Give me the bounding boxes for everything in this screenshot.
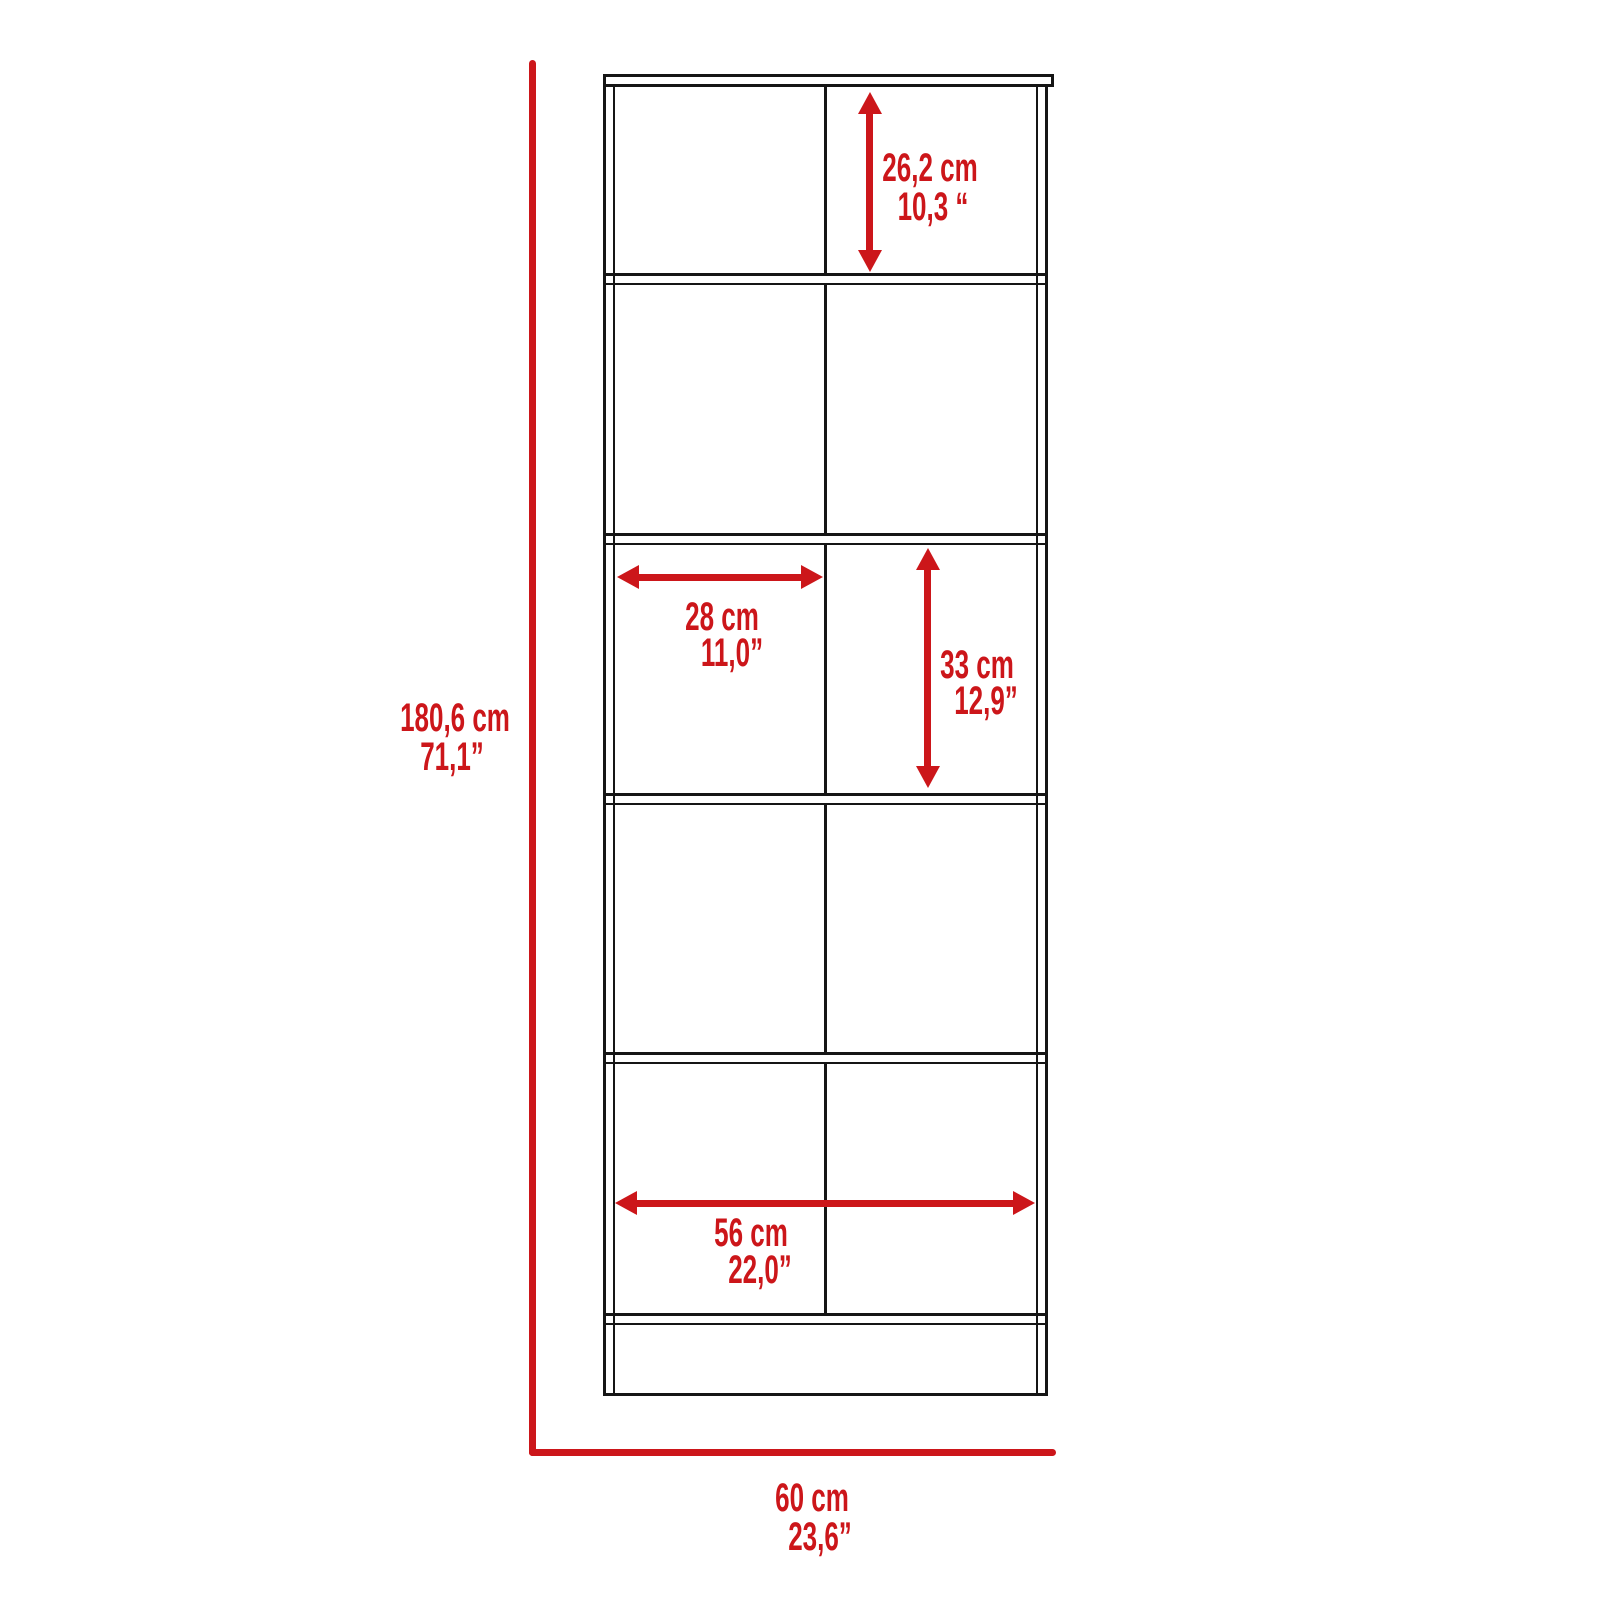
arrow-shaft [924,566,931,770]
top-compartment-height-cm-label: 26,2 cm [882,148,977,188]
cabinet-center-divider [824,87,827,1313]
overall-height-extent-line [529,60,536,1456]
shelf-band [606,1313,1045,1325]
overall-height-in-label: 71,1” [420,737,484,777]
cabinet-top-board [603,74,1054,87]
shelf-band [606,533,1045,545]
arrow-shaft [866,110,873,254]
cabinet-right-inner-wall-line [1036,87,1038,1393]
interior-width-in-label: 22,0” [728,1250,792,1290]
shelf-band [606,1052,1045,1064]
overall-width-cm-label: 60 cm [775,1478,849,1518]
arrow-head-right-icon [1013,1191,1035,1215]
arrow-head-down-icon [858,250,882,272]
arrow-shaft [635,574,805,581]
arrow-shaft [633,1200,1015,1207]
top-compartment-height-in-label: 10,3 “ [898,187,969,227]
arrow-head-down-icon [916,766,940,788]
arrow-head-right-icon [801,565,823,589]
overall-height-cm-label: 180,6 cm [400,698,510,738]
interior-width-cm-label: 56 cm [714,1213,788,1253]
dimension-diagram: 180,6 cm 71,1” 26,2 cm 10,3 “ 28 cm 11,0… [0,0,1600,1601]
overall-width-in-label: 23,6” [788,1517,852,1557]
shelf-band [606,793,1045,805]
compartment-height-in-label: 12,9” [954,681,1018,721]
shelf-band [606,273,1045,285]
overall-width-extent-line [529,1449,1056,1456]
compartment-width-in-label: 11,0” [701,633,763,673]
